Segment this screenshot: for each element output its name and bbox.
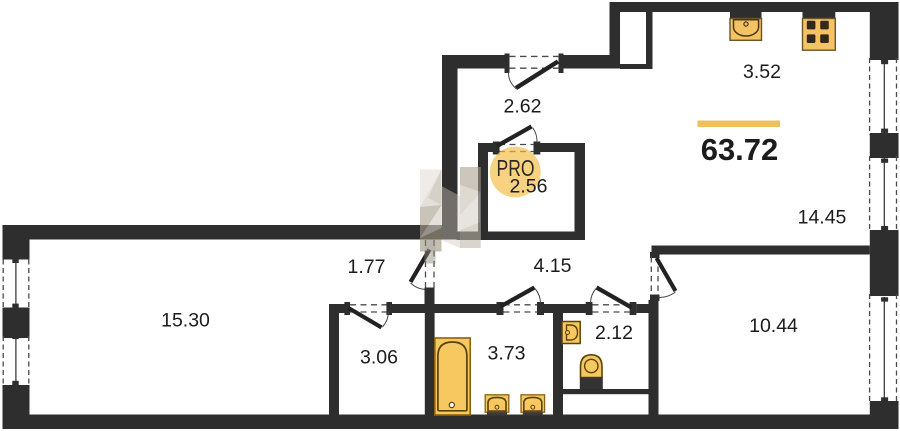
svg-text:2.56: 2.56 <box>510 176 548 198</box>
svg-text:63.72: 63.72 <box>701 132 779 167</box>
svg-text:15.30: 15.30 <box>161 310 210 332</box>
svg-text:3.73: 3.73 <box>488 343 526 365</box>
svg-text:14.45: 14.45 <box>798 207 847 229</box>
svg-text:10.44: 10.44 <box>749 315 798 337</box>
svg-text:1.77: 1.77 <box>348 256 386 278</box>
svg-text:4.15: 4.15 <box>534 255 572 277</box>
svg-text:2.12: 2.12 <box>595 322 633 344</box>
svg-text:2.62: 2.62 <box>504 96 542 118</box>
svg-text:3.52: 3.52 <box>743 61 781 83</box>
svg-text:3.06: 3.06 <box>360 347 398 369</box>
